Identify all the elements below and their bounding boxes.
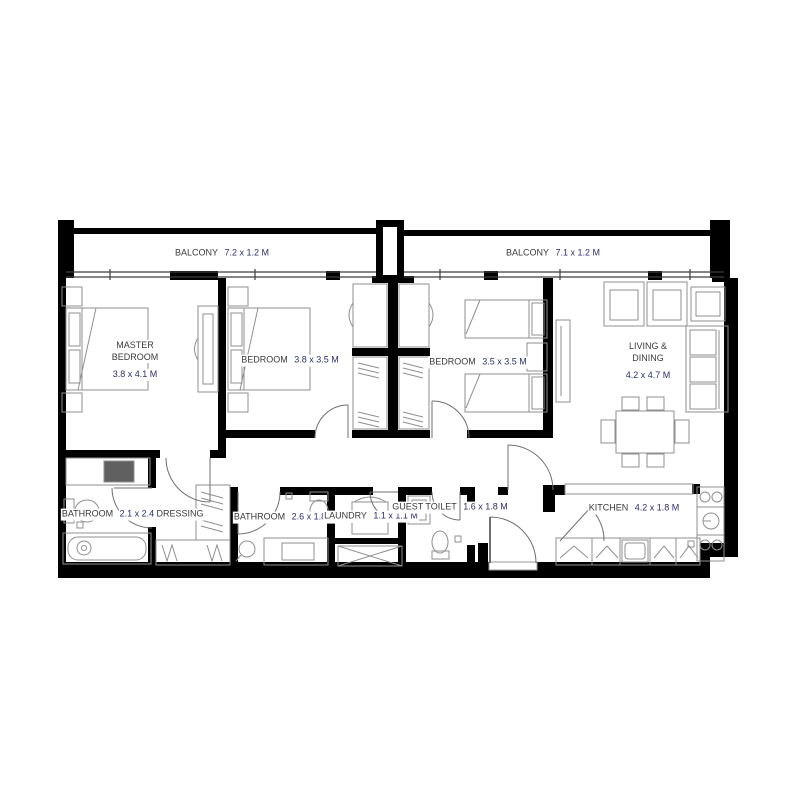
- dining-table: [616, 411, 674, 453]
- toilet-tank: [432, 551, 449, 559]
- guest-toilet-right-wall-bottom: [467, 545, 475, 570]
- pillow: [532, 377, 544, 409]
- floor-plan-drawing: [0, 0, 800, 800]
- room-label-dressing: DRESSING: [155, 503, 204, 524]
- shelf-hatch: [358, 412, 379, 427]
- pillow: [69, 313, 80, 346]
- burner: [712, 492, 722, 502]
- room-dims: 3.8 x 4.1 M: [112, 369, 159, 381]
- room-name: LAUNDRY: [323, 511, 368, 523]
- room-name: BATHROOM: [233, 512, 286, 524]
- door-leaf: [560, 508, 590, 541]
- room-dims: 7.2 x 1.2 M: [223, 248, 270, 260]
- bathtub-drain: [77, 541, 91, 555]
- room-label-balcony-left: BALCONY 7.2 x 1.2 M: [174, 242, 270, 263]
- shower-head: [239, 541, 255, 557]
- door-arc: [490, 517, 536, 563]
- nightstand: [228, 287, 248, 306]
- bath2-top-wall: [280, 487, 327, 495]
- sofa-cushion: [690, 384, 716, 409]
- closet-upper-left: [353, 284, 387, 347]
- bedroom3-bottom-wall: [467, 430, 543, 438]
- left-outer-wall: [58, 278, 66, 570]
- master-wardrobe: [198, 306, 218, 392]
- column-top-right: [710, 220, 730, 278]
- closet-upper-right: [399, 284, 429, 347]
- sofa-cushion: [653, 290, 681, 320]
- door-master-bedroom: [166, 458, 210, 502]
- closet-mid-wall: [352, 348, 430, 356]
- door-arc: [508, 445, 553, 490]
- dining-chair: [647, 454, 664, 467]
- closet-handle: [429, 303, 433, 327]
- room-label-bedroom-3: BEDROOM 3.5 x 3.5 M: [428, 351, 528, 372]
- room-label-bedroom-2: BEDROOM 3.8 x 3.5 M: [240, 349, 340, 370]
- blanket-fold: [78, 308, 96, 390]
- room-label-guest-toilet: GUEST TOILET 1.6 x 1.8 M: [391, 496, 509, 517]
- bathtub-inner: [68, 537, 146, 560]
- toilet-bowl: [432, 531, 448, 553]
- room-dims: 3.8 x 3.5 M: [293, 355, 340, 367]
- room-label-kitchen: KITCHEN 4.2 x 1.8 M: [588, 497, 681, 518]
- closet-bottom-wall: [352, 430, 430, 438]
- cabinet-door-mark: [654, 546, 674, 558]
- balcony-right-top-wall: [404, 230, 712, 236]
- room-dims: 4.2 x 4.7 M: [625, 370, 672, 382]
- room-label-living-dining: LIVING & DINING 4.2 x 4.7 M: [621, 341, 675, 385]
- kitchen-sink-basin: [625, 543, 645, 559]
- dressing-bath2-wall: [230, 487, 238, 570]
- corridor-door-jamb: [498, 487, 508, 495]
- room-name: DRESSING: [155, 509, 204, 521]
- pillow: [69, 350, 80, 383]
- closet-handle: [349, 303, 353, 327]
- room-name: BALCONY: [174, 248, 219, 260]
- sofa-right: [686, 326, 728, 412]
- kitchen-base-counter: [556, 538, 700, 565]
- room-dims: 1.6 x 1.8 M: [462, 502, 509, 514]
- room-name: BEDROOM: [428, 357, 477, 369]
- bathroom-2-fixtures: [236, 492, 328, 565]
- column-top-left: [58, 220, 74, 278]
- pillow: [532, 303, 544, 335]
- dressing-wardrobes: [156, 485, 230, 565]
- room-name: MASTER BEDROOM: [103, 340, 167, 363]
- balcony-left-top-wall: [74, 228, 378, 234]
- bathtub-drain-center: [82, 546, 87, 551]
- blanket-fold: [466, 374, 480, 408]
- door-corridor-living: [508, 445, 553, 490]
- room-label-bathroom-2: BATHROOM 2.6 x 1.8 M: [233, 506, 337, 527]
- room-name: KITCHEN: [588, 503, 630, 515]
- room-name: BEDROOM: [240, 355, 289, 367]
- room-name: GUEST TOILET: [391, 502, 458, 514]
- blanket-fold: [466, 300, 480, 334]
- guest-toilet-top-wall: [403, 487, 432, 495]
- room-name: LIVING & DINING: [621, 341, 675, 364]
- column-center-core: [383, 227, 397, 275]
- sofa-cushion: [610, 290, 638, 320]
- hanger-hatch: [207, 545, 222, 561]
- sink-basin: [104, 461, 134, 482]
- laundry-shaft-wall: [333, 538, 406, 544]
- sofa-cushion: [690, 330, 716, 355]
- nightstand: [228, 393, 248, 412]
- bedroom3-living-wall: [543, 278, 553, 438]
- master-bottom-wall-stub: [210, 450, 226, 458]
- master-bedroom2-wall: [218, 278, 226, 458]
- door-arc: [166, 458, 210, 502]
- shelf-hatch: [403, 412, 423, 427]
- door-arc: [315, 405, 348, 438]
- room-label-bathroom-master: BATHROOM 2.1 x 2.4 M: [61, 503, 165, 524]
- bath1-dressing-wall-top: [148, 458, 156, 488]
- entrance-jamb: [478, 543, 488, 562]
- washer-top-curve: [354, 497, 386, 502]
- room-dims: 4.2 x 1.8 M: [634, 503, 681, 515]
- accessory: [455, 536, 461, 542]
- laundry-top-wall: [333, 487, 373, 495]
- dining-chair: [601, 420, 615, 443]
- cabinet-door-mark: [596, 546, 618, 558]
- kitchen-top-stub: [543, 485, 565, 495]
- room-name: BATHROOM: [61, 509, 114, 521]
- entrance-threshold: [489, 562, 537, 570]
- vanity-counter: [264, 538, 328, 565]
- closet-divider-wall: [388, 283, 398, 438]
- sofa-cushion: [690, 357, 716, 382]
- bedroom2-bottom-wall: [226, 430, 315, 438]
- dining-chair: [622, 397, 639, 410]
- wardrobe-handle: [195, 338, 199, 360]
- master-bottom-wall: [58, 450, 160, 458]
- room-dims: 7.1 x 1.2 M: [554, 248, 601, 260]
- door-bedroom-2: [315, 405, 348, 438]
- sink-basin: [282, 543, 314, 560]
- dining-chair: [675, 420, 689, 443]
- room-dims: 3.5 x 3.5 M: [481, 357, 528, 369]
- cabinet-door-mark: [680, 546, 698, 558]
- hanger-hatch: [162, 545, 177, 561]
- doors: [112, 401, 604, 570]
- door-arc: [432, 401, 469, 438]
- master-wardrobe-door: [203, 314, 213, 384]
- cabinet-door-mark: [560, 546, 588, 558]
- pillow: [231, 313, 242, 346]
- door-entrance: [489, 517, 537, 570]
- tv-console: [556, 320, 570, 402]
- room-name: BALCONY: [505, 248, 550, 260]
- door-bedroom-3: [432, 401, 469, 438]
- shelf-hatch: [358, 363, 379, 378]
- dining-chair: [647, 397, 664, 410]
- shelf-hatch: [403, 363, 423, 378]
- burner: [700, 492, 710, 502]
- floor-plan-canvas: BALCONY 7.2 x 1.2 M BALCONY 7.1 x 1.2 M …: [0, 0, 800, 800]
- room-label-balcony-right: BALCONY 7.1 x 1.2 M: [505, 242, 601, 263]
- dining-chair: [622, 454, 639, 467]
- kitchen-top-counter: [565, 484, 693, 494]
- side-table-top: [696, 292, 720, 316]
- room-label-master-bedroom: MASTER BEDROOM 3.8 x 4.1 M: [103, 340, 167, 384]
